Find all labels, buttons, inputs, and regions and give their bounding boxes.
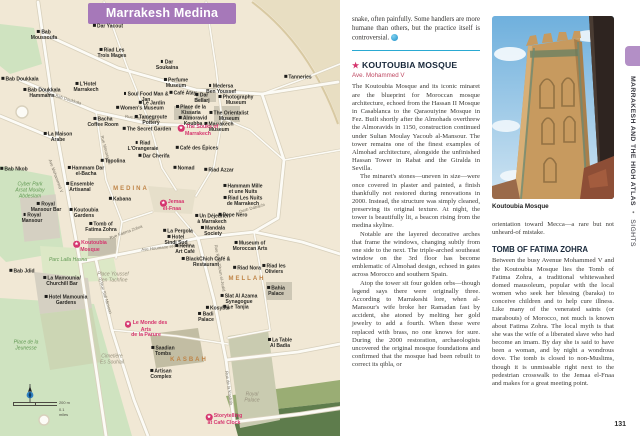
koutoubia-photo	[492, 16, 614, 199]
info-icon	[391, 34, 398, 41]
continuation-paragraph: orientation toward Mecca—a rare but not …	[492, 221, 614, 237]
map-marrakesh-medina: Marrakesh Medina Rue Bab DoukkalaRue Dar…	[0, 0, 340, 436]
koutoubia-paragraph-1: The Koutoubia Mosque and its iconic mina…	[352, 83, 480, 173]
section-title-koutoubia: ★ KOUTOUBIA MOSQUE	[352, 60, 480, 70]
map-base-art	[0, 0, 340, 436]
map-title-banner: Marrakesh Medina	[88, 3, 236, 24]
koutoubia-paragraph-4: Atop the tower sit four golden orbs—thou…	[352, 280, 480, 370]
article-column-2: Koutoubia Mosque orientation toward Mecc…	[492, 16, 614, 388]
sidebar-section: SIGHTS	[629, 219, 636, 247]
sidebar-chapter: MARRAKESH AND THE HIGH ATLAS	[629, 76, 636, 206]
section-divider	[352, 50, 480, 51]
guidebook-page: Marrakesh Medina Rue Bab DoukkalaRue Dar…	[0, 0, 640, 436]
map-scale-bar: 200 m 0.1 miles	[13, 402, 73, 406]
section-title-fatima: TOMB OF FATIMA ZOHRA	[492, 245, 614, 254]
article-column-1: snake, often painfully. Some handlers ar…	[352, 16, 480, 370]
koutoubia-paragraph-2: The minaret's stones—uneven in size—were…	[352, 173, 480, 230]
sidebar-divider-dot: •	[629, 211, 636, 214]
koutoubia-paragraph-3: Notable are the layered decorative arche…	[352, 231, 480, 280]
sidebar-vertical-text: MARRAKESH AND THE HIGH ATLAS • SIGHTS	[629, 76, 636, 247]
fatima-paragraph: Between the busy Avenue Mohammed V and t…	[492, 257, 614, 388]
section-title-text: KOUTOUBIA MOSQUE	[362, 60, 457, 70]
photo-caption: Koutoubia Mosque	[492, 203, 614, 210]
scale-metric: 200 m	[59, 400, 70, 405]
address-line: Ave. Mohammed V	[352, 72, 480, 79]
star-icon: ★	[352, 61, 359, 70]
chapter-tab	[625, 46, 640, 66]
lead-paragraph: snake, often painfully. Some handlers ar…	[352, 16, 480, 43]
lead-text: snake, often painfully. Some handlers ar…	[352, 16, 480, 41]
scale-imperial: 0.1 miles	[59, 407, 73, 417]
koutoubia-paragraphs: The Koutoubia Mosque and its iconic mina…	[352, 83, 480, 369]
article-content: snake, often painfully. Some handlers ar…	[352, 0, 614, 436]
page-number: 131	[614, 421, 626, 428]
scale-bar-line	[13, 402, 57, 406]
